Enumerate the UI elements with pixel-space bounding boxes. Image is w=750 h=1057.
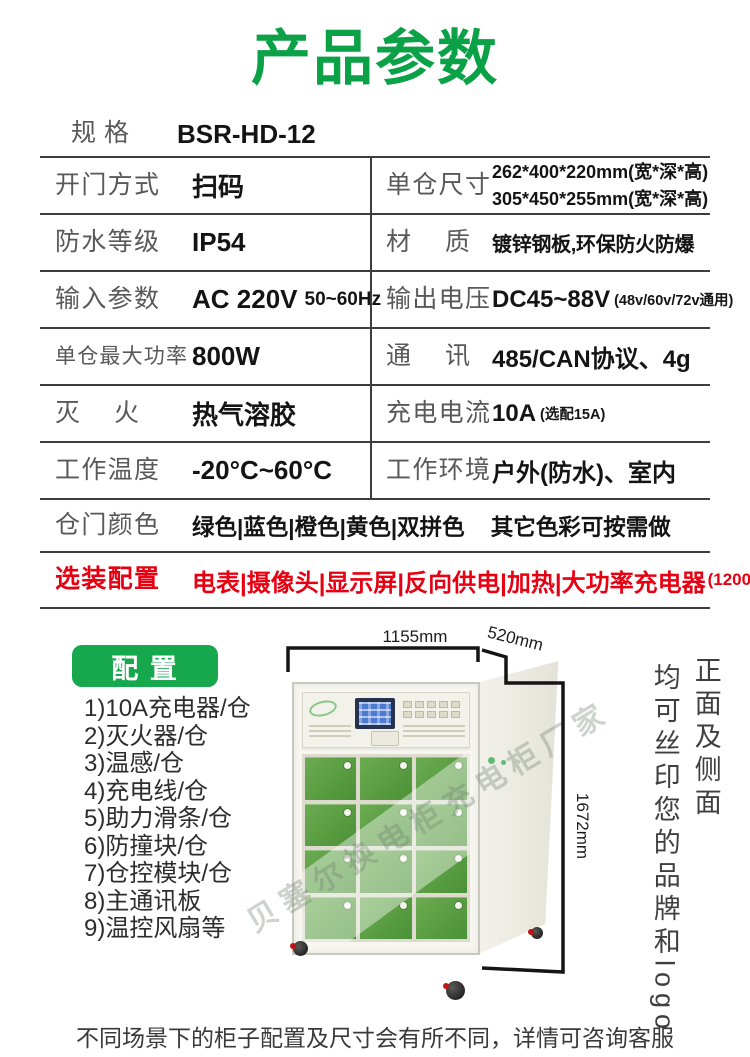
spec-value: DC45~88V xyxy=(492,286,610,314)
spec-value: 热气溶胶 xyxy=(192,395,296,432)
spec-table: 规格BSR-HD-12开门方式扫码单仓尺寸262*400*220mm(宽*深*高… xyxy=(40,112,710,609)
lock-dot-icon xyxy=(400,902,407,909)
spec-label-box: 工作环境 xyxy=(386,457,492,485)
locker-door xyxy=(305,757,356,800)
card-slot xyxy=(371,731,399,746)
spec-row: 规格BSR-HD-12 xyxy=(40,112,710,158)
dimension-lines: 1155mm 520mm 1672mm xyxy=(280,626,600,986)
spec-row: 工作温度-20°C~60°C工作环境户外(防水)、室内 xyxy=(40,443,710,500)
spec-label-box: 单仓尺寸 xyxy=(386,172,492,200)
spec-value: 800W xyxy=(192,341,260,372)
spec-value-suffix: (48v/60v/72v通用) xyxy=(614,289,733,310)
light-reflection xyxy=(302,754,470,942)
spec-value: IP54 xyxy=(192,227,246,258)
spec-row: 防水等级IP54材质镀锌钢板,环保防火防爆 xyxy=(40,215,710,272)
config-list-item: 8)主通讯板 xyxy=(84,888,251,916)
spec-cell-left: 灭火热气溶胶 xyxy=(40,386,370,441)
lock-dot-icon xyxy=(455,762,462,769)
panel-button xyxy=(415,701,424,708)
spec-label: 开门方式 xyxy=(55,172,159,200)
cabinet-front xyxy=(292,682,480,955)
panel-button xyxy=(415,711,424,718)
spec-label: 单仓尺寸 xyxy=(386,172,490,200)
dim-depth-height-line xyxy=(482,650,563,972)
side-note-branding: 均可丝印您的品牌和logo xyxy=(649,663,679,1035)
spec-label-box: 选装配置 xyxy=(55,566,192,594)
spec-cell-left: 开门方式扫码 xyxy=(40,158,370,213)
spec-cell-right: 工作环境户外(防水)、室内 xyxy=(370,443,710,498)
spec-value: BSR-HD-12 xyxy=(177,119,316,150)
spec-value-suffix: (1200W15A) xyxy=(708,570,750,590)
panel-button xyxy=(427,711,436,718)
config-list-item: 2)灭火器/仓 xyxy=(84,723,251,751)
spec-row: 单仓最大功率800W通讯485/CAN协议、4g xyxy=(40,329,710,386)
panel-button xyxy=(403,711,412,718)
lock-dot-icon xyxy=(344,855,351,862)
spec-cell-left: 工作温度-20°C~60°C xyxy=(40,443,370,498)
dim-width-label: 1155mm xyxy=(383,627,448,646)
spec-cell-right: 通讯485/CAN协议、4g xyxy=(370,329,710,384)
dim-height-label: 1672mm xyxy=(573,793,592,859)
spec-label-box: 单仓最大功率 xyxy=(55,345,192,368)
spec-label: 通讯 xyxy=(386,343,470,371)
locker-door xyxy=(416,757,467,800)
spec-cell-right: 充电电流10A(选配15A) xyxy=(370,386,710,441)
config-list-item: 4)充电线/仓 xyxy=(84,778,251,806)
panel-button xyxy=(439,701,448,708)
spec-value: 262*400*220mm(宽*深*高)305*450*255mm(宽*深*高) xyxy=(492,159,708,213)
side-brand-mark-icon xyxy=(488,757,495,764)
spec-value-line: 262*400*220mm(宽*深*高) xyxy=(492,159,708,186)
locker-door xyxy=(416,804,467,847)
cabinet-side-panel xyxy=(478,658,560,960)
spec-label: 工作环境 xyxy=(386,457,490,485)
spec-row: 开门方式扫码单仓尺寸262*400*220mm(宽*深*高)305*450*25… xyxy=(40,158,710,215)
spec-value: 485/CAN协议、4g xyxy=(492,339,691,374)
spec-cell-full: 仓门颜色绿色|蓝色|橙色|黄色|双拼色其它色彩可按需做 xyxy=(40,500,710,551)
lock-dot-icon xyxy=(455,809,462,816)
footer-note: 不同场景下的柜子配置及尺寸会有所不同，详情可咨询客服 xyxy=(0,1019,750,1053)
spec-label-box: 灭火 xyxy=(55,400,192,428)
lock-dot-icon xyxy=(455,855,462,862)
side-note-front-and-side: 正面及侧面 xyxy=(690,656,720,821)
panel-button xyxy=(427,701,436,708)
spec-cell-right: 单仓尺寸262*400*220mm(宽*深*高)305*450*255mm(宽*… xyxy=(370,158,710,213)
caster-wheel xyxy=(293,941,308,956)
brand-logo-icon xyxy=(308,698,339,719)
spec-value: 扫码 xyxy=(192,167,244,204)
spec-label: 输入参数 xyxy=(55,286,159,314)
config-list-item: 5)助力滑条/仓 xyxy=(84,805,251,833)
door-area xyxy=(302,754,470,942)
spec-cell-left: 输入参数AC 220V50~60Hz xyxy=(40,272,370,327)
control-panel xyxy=(302,692,470,748)
page-title: 产品参数 xyxy=(0,10,750,97)
spec-label: 灭火 xyxy=(55,400,139,428)
spec-row: 仓门颜色绿色|蓝色|橙色|黄色|双拼色其它色彩可按需做 xyxy=(40,500,710,553)
locker-door xyxy=(416,897,467,940)
page: 产品参数 规格BSR-HD-12开门方式扫码单仓尺寸262*400*220mm(… xyxy=(0,0,750,1057)
spec-row: 输入参数AC 220V50~60Hz输出电压DC45~88V(48v/60v/7… xyxy=(40,272,710,329)
vent-grill xyxy=(309,725,351,738)
spec-row: 灭火热气溶胶充电电流10A(选配15A) xyxy=(40,386,710,443)
locker-door xyxy=(360,850,411,893)
spec-cell-right: 材质镀锌钢板,环保防火防爆 xyxy=(370,215,710,270)
spec-cell-left: 防水等级IP54 xyxy=(40,215,370,270)
spec-label-box: 输出电压 xyxy=(386,286,492,314)
locker-door xyxy=(360,897,411,940)
locker-door xyxy=(305,897,356,940)
spec-value: 电表|摄像头|显示屏|反向供电|加热|大功率充电器 xyxy=(192,563,706,598)
lock-dot-icon xyxy=(400,809,407,816)
spec-label-box: 材质 xyxy=(386,229,492,257)
lcd-screen-content xyxy=(359,702,391,725)
caster-wheel xyxy=(531,927,543,939)
panel-button xyxy=(451,701,460,708)
door-grid xyxy=(302,754,470,942)
dim-width-line xyxy=(288,648,478,672)
spec-label-box: 规格 xyxy=(55,120,177,148)
spec-cell-left: 单仓最大功率800W xyxy=(40,329,370,384)
spec-cell-full: 规格BSR-HD-12 xyxy=(40,112,710,156)
config-list-item: 9)温控风扇等 xyxy=(84,915,251,943)
lock-dot-icon xyxy=(455,902,462,909)
lock-dot-icon xyxy=(344,809,351,816)
spec-value: 10A xyxy=(492,400,536,428)
spec-label-box: 输入参数 xyxy=(55,286,192,314)
spec-value: 绿色|蓝色|橙色|黄色|双拼色 xyxy=(192,510,465,542)
dim-depth-label: 520mm xyxy=(486,626,546,655)
panel-button xyxy=(451,711,460,718)
spec-note: 其它色彩可按需做 xyxy=(491,510,671,542)
locker-door xyxy=(305,804,356,847)
lock-dot-icon xyxy=(400,762,407,769)
spec-value: -20°C~60°C xyxy=(192,455,332,486)
spec-label: 规格 xyxy=(71,120,129,148)
panel-button xyxy=(403,701,412,708)
watermark-text: 贝塞尔换电柜充电柜厂家 xyxy=(237,688,618,941)
spec-label: 工作温度 xyxy=(55,457,159,485)
locker-door xyxy=(416,850,467,893)
config-list-item: 6)防撞块/仓 xyxy=(84,833,251,861)
config-list-item: 3)温感/仓 xyxy=(84,750,251,778)
panel-button xyxy=(439,711,448,718)
locker-door xyxy=(305,850,356,893)
spec-label-box: 仓门颜色 xyxy=(55,512,192,540)
spec-value: 户外(防水)、室内 xyxy=(492,453,676,488)
caster-wheel xyxy=(446,981,465,1000)
spec-label: 充电电流 xyxy=(386,400,490,428)
config-badge-label: 配 置 xyxy=(111,647,179,686)
spec-value: AC 220V xyxy=(192,284,298,315)
config-list-item: 7)仓控模块/仓 xyxy=(84,860,251,888)
spec-value: 镀锌钢板,环保防火防爆 xyxy=(492,228,694,257)
spec-row: 选装配置电表|摄像头|显示屏|反向供电|加热|大功率充电器(1200W15A) xyxy=(40,553,710,609)
spec-label-box: 工作温度 xyxy=(55,457,192,485)
spec-label-box: 通讯 xyxy=(386,343,492,371)
spec-label: 单仓最大功率 xyxy=(55,345,187,368)
lock-dot-icon xyxy=(344,902,351,909)
spec-cell-full: 选装配置电表|摄像头|显示屏|反向供电|加热|大功率充电器(1200W15A) xyxy=(40,553,710,607)
spec-label: 材质 xyxy=(386,229,470,257)
spec-label: 仓门颜色 xyxy=(55,512,159,540)
locker-door xyxy=(360,757,411,800)
locker-door xyxy=(360,804,411,847)
spec-value-suffix: (选配15A) xyxy=(540,403,605,424)
lock-dot-icon xyxy=(400,855,407,862)
spec-label-box: 开门方式 xyxy=(55,172,192,200)
spec-label: 选装配置 xyxy=(55,566,159,594)
lcd-screen xyxy=(355,698,395,729)
control-buttons xyxy=(403,701,460,718)
spec-value-line: 305*450*255mm(宽*深*高) xyxy=(492,186,708,213)
spec-label-box: 防水等级 xyxy=(55,229,192,257)
lock-dot-icon xyxy=(344,762,351,769)
spec-label: 输出电压 xyxy=(386,286,490,314)
config-list: 1)10A充电器/仓2)灭火器/仓3)温感/仓4)充电线/仓5)助力滑条/仓6)… xyxy=(84,695,251,943)
spec-label-box: 充电电流 xyxy=(386,400,492,428)
config-badge: 配 置 xyxy=(72,645,218,687)
spec-cell-right: 输出电压DC45~88V(48v/60v/72v通用) xyxy=(370,272,710,327)
vent-grill xyxy=(403,725,465,738)
config-list-item: 1)10A充电器/仓 xyxy=(84,695,251,723)
spec-label: 防水等级 xyxy=(55,229,159,257)
